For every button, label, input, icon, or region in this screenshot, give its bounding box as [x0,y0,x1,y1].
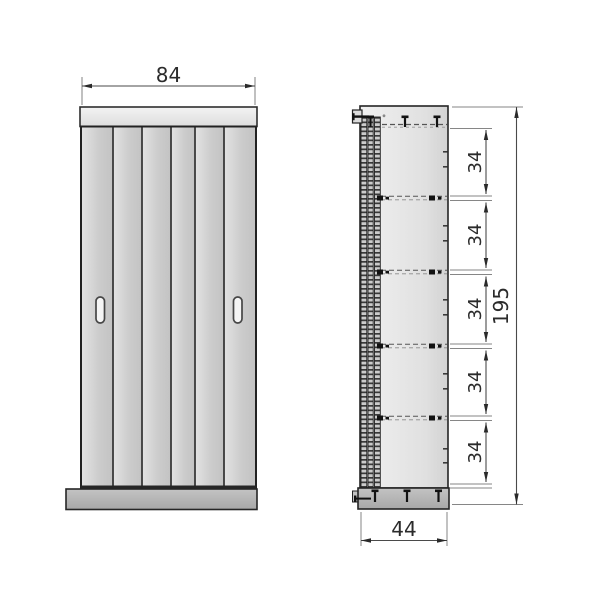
plank [142,128,171,487]
door-profile-strip [375,117,381,495]
screw-icon [438,271,442,274]
arrowhead-up-icon [484,423,488,433]
technical-drawing-canvas: 84 [0,0,600,600]
screw-icon [377,196,383,201]
arrowhead-down-icon [484,184,488,194]
spacing-dimension-5: 34 [465,423,488,483]
arrowhead-left-icon [82,84,92,89]
shelf-spacing-label-2: 34 [465,224,486,247]
arrowhead-up-icon [514,107,518,118]
height-dimension-label: 195 [489,287,513,325]
arrowhead-up-icon [484,130,488,140]
screw-icon [404,490,411,493]
screw-icon [377,416,383,421]
screw-icon [429,344,435,349]
shelf-spacing-dimensions: 34 34 34 34 [465,130,488,482]
height-dimension: 195 [452,107,523,505]
screw-icon [438,345,442,348]
screw-icon [377,270,383,275]
arrowhead-down-icon [514,494,518,505]
arrowhead-down-icon [484,258,488,268]
screw-icon [386,345,390,348]
arrowhead-up-icon [484,277,488,287]
door-track-strips [361,117,380,495]
door-handle-right [234,297,243,323]
spacing-dimension-4: 34 [465,351,488,415]
screw-icon [386,197,390,200]
sliding-doors [81,127,256,488]
arrowhead-down-icon [484,404,488,414]
screw-icon [377,344,383,349]
arrowhead-left-icon [361,538,371,543]
plank [113,128,142,487]
spacing-dimension-1: 34 [465,130,488,194]
wardrobe-dimension-drawing: 84 [0,0,600,600]
top-rail [80,107,257,127]
width-dimension: 84 [82,63,255,105]
shelf-spacing-label-4: 34 [465,371,486,394]
screw-icon [438,417,442,420]
side-base [353,488,450,509]
shelf-spacing-label-1: 34 [465,151,486,174]
dowel-mark [383,114,386,117]
shelf-spacing-label-5: 34 [465,441,486,464]
depth-dimension: 44 [361,512,447,546]
width-dimension-label: 84 [156,63,181,87]
screw-icon [429,270,435,275]
plank [171,128,195,487]
screw-icon [435,490,442,493]
screw-icon [429,416,435,421]
arrowhead-up-icon [484,351,488,361]
door-profile-strip [361,117,367,495]
screw-icon [386,271,390,274]
side-view [352,106,449,509]
screw-icon [429,196,435,201]
door-handle-left [96,297,105,323]
screw-icon [438,197,442,200]
arrowhead-right-icon [245,84,255,89]
screw-icon [372,490,379,493]
depth-dimension-label: 44 [391,517,416,541]
screw-icon [386,417,390,420]
door-profile-strip [368,117,373,495]
arrowhead-down-icon [484,332,488,342]
front-view: 84 [66,63,257,510]
arrowhead-up-icon [484,203,488,213]
plank [195,128,224,487]
arrowhead-right-icon [437,538,447,543]
plinth [66,489,257,510]
shelf-spacing-label-3: 34 [465,298,486,321]
spacing-dimension-3: 34 [465,277,488,343]
spacing-dimension-2: 34 [465,203,488,269]
arrowhead-down-icon [484,472,488,482]
